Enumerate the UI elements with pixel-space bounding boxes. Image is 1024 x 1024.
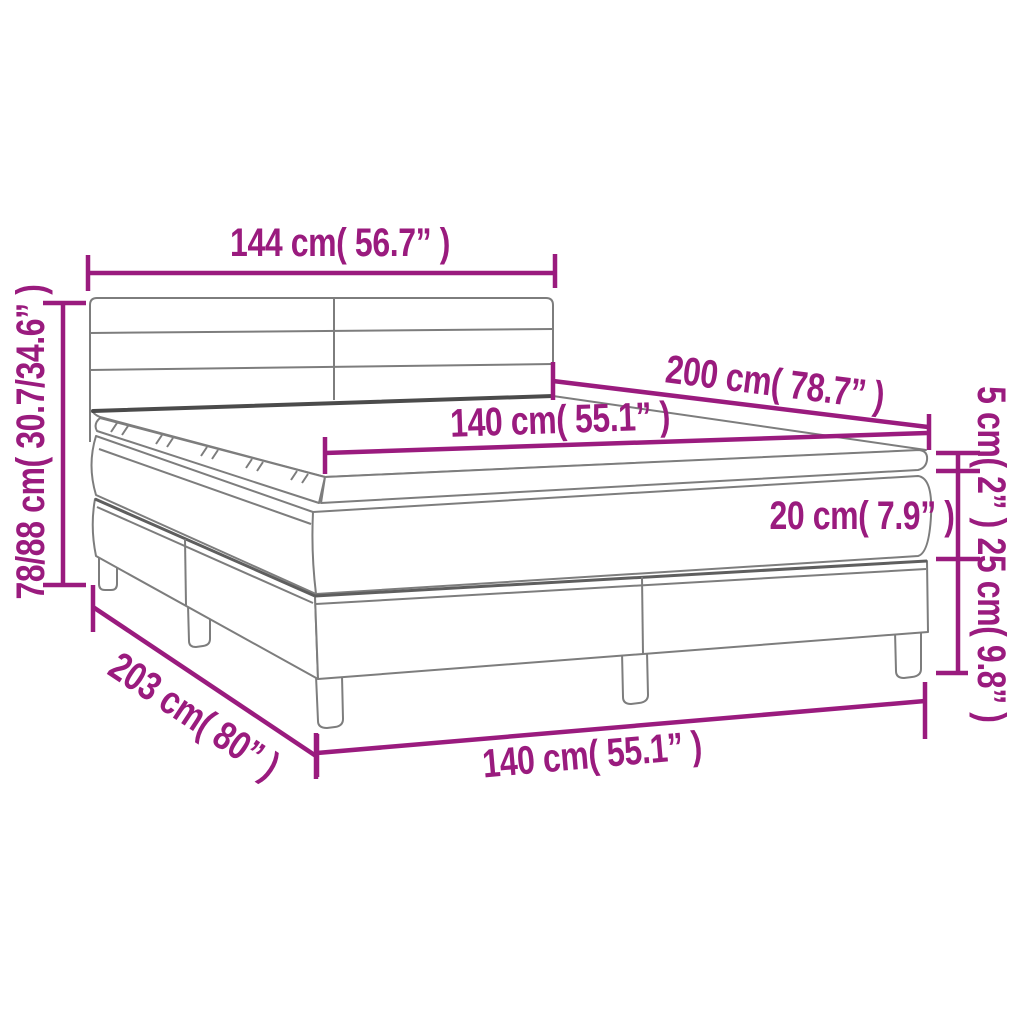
dim-label-mattress-width-top: 140 cm( 55.1” ) — [449, 396, 670, 444]
bed-leg-foot-middle — [622, 652, 648, 704]
base-panel-divider-foot — [642, 577, 643, 654]
base-panel-divider-left — [185, 539, 186, 605]
bed-leg-corner — [316, 676, 343, 728]
dim-label-total-height: 78/88 cm( 30.7/34.6” ) — [11, 285, 51, 600]
dim-label-headboard-width: 144 cm( 56.7” ) — [230, 223, 450, 263]
bed-leg-foot-right — [895, 631, 921, 678]
dim-label-topper-height: 5 cm( 2” ) — [971, 386, 1011, 528]
dim-label-base-height: 25 cm( 9.8” ) — [971, 537, 1011, 722]
bed-dimension-diagram: 144 cm( 56.7” ) 200 cm( 78.7” ) 140 cm( … — [0, 0, 1024, 1024]
dim-label-mattress-height: 20 cm( 7.9” ) — [769, 496, 954, 536]
